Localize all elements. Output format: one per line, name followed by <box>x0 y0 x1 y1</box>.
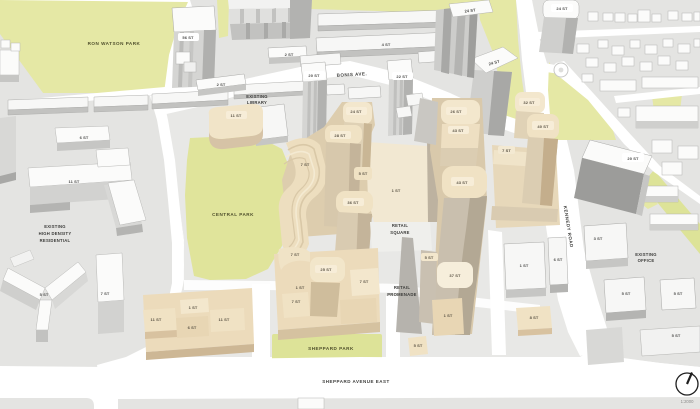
svg-text:7 ST: 7 ST <box>291 252 300 257</box>
svg-text:11 ST: 11 ST <box>231 113 242 118</box>
svg-text:11 ST: 11 ST <box>219 317 230 322</box>
svg-text:EXISTING: EXISTING <box>635 252 657 257</box>
svg-text:25 ST: 25 ST <box>320 267 332 272</box>
svg-text:1 ST: 1 ST <box>296 285 305 290</box>
svg-text:24 ST: 24 ST <box>556 6 568 11</box>
svg-text:40 ST: 40 ST <box>537 124 549 129</box>
svg-text:RON WATSON PARK: RON WATSON PARK <box>88 41 141 46</box>
svg-text:5 ST: 5 ST <box>40 292 49 297</box>
svg-text:CENTRAL PARK: CENTRAL PARK <box>212 212 254 217</box>
svg-text:SHEPPARD PARK: SHEPPARD PARK <box>308 346 354 351</box>
svg-text:11 ST: 11 ST <box>151 317 162 322</box>
svg-text:22 ST: 22 ST <box>396 74 408 79</box>
svg-text:28 ST: 28 ST <box>334 133 346 138</box>
svg-text:3 ST: 3 ST <box>594 236 603 241</box>
svg-text:43 ST: 43 ST <box>452 128 464 133</box>
svg-text:SQUARE: SQUARE <box>390 230 409 235</box>
svg-text:26 ST: 26 ST <box>450 109 462 114</box>
svg-text:RETAIL: RETAIL <box>392 223 409 228</box>
svg-text:1 ST: 1 ST <box>392 188 401 193</box>
svg-text:EXISTING: EXISTING <box>44 224 66 229</box>
svg-text:7 ST: 7 ST <box>101 291 110 296</box>
svg-text:43 ST: 43 ST <box>456 180 468 185</box>
svg-text:5 ST: 5 ST <box>414 343 423 348</box>
svg-text:1:2000: 1:2000 <box>681 399 694 404</box>
svg-text:RESIDENTIAL: RESIDENTIAL <box>40 238 71 243</box>
svg-text:OFFICE: OFFICE <box>638 258 655 263</box>
svg-text:6 ST: 6 ST <box>554 257 563 262</box>
svg-text:1 ST: 1 ST <box>189 305 198 310</box>
svg-text:7 ST: 7 ST <box>360 279 369 284</box>
svg-text:32 ST: 32 ST <box>523 100 535 105</box>
svg-text:11 ST: 11 ST <box>69 179 80 184</box>
svg-text:EXISTING: EXISTING <box>246 94 268 99</box>
svg-text:56 ST: 56 ST <box>182 35 194 40</box>
svg-text:24 ST: 24 ST <box>350 109 362 114</box>
svg-text:20 ST: 20 ST <box>308 73 320 78</box>
svg-text:5 ST: 5 ST <box>359 171 368 176</box>
svg-text:7 ST: 7 ST <box>502 148 511 153</box>
svg-text:5 ST: 5 ST <box>674 291 683 296</box>
svg-text:4 ST: 4 ST <box>382 42 391 47</box>
svg-text:1 ST: 1 ST <box>520 263 529 268</box>
svg-text:5 ST: 5 ST <box>672 333 681 338</box>
svg-text:1 ST: 1 ST <box>444 313 453 318</box>
svg-text:5 ST: 5 ST <box>622 291 631 296</box>
svg-text:2 ST: 2 ST <box>217 82 226 87</box>
svg-text:6 ST: 6 ST <box>80 135 89 140</box>
svg-text:PROMENADE: PROMENADE <box>387 292 416 297</box>
svg-text:SHEPPARD AVENUE EAST: SHEPPARD AVENUE EAST <box>322 379 389 384</box>
svg-text:36 ST: 36 ST <box>347 200 359 205</box>
svg-text:RETAIL: RETAIL <box>394 285 411 290</box>
svg-text:5 ST: 5 ST <box>425 255 434 260</box>
svg-text:8 ST: 8 ST <box>530 315 539 320</box>
svg-text:7 ST: 7 ST <box>292 299 301 304</box>
svg-text:6 ST: 6 ST <box>188 325 197 330</box>
svg-text:2 ST: 2 ST <box>285 52 294 57</box>
svg-text:7 ST: 7 ST <box>301 162 310 167</box>
svg-text:20 ST: 20 ST <box>627 156 639 161</box>
svg-text:37 ST: 37 ST <box>449 273 461 278</box>
svg-text:HIGH DENSITY: HIGH DENSITY <box>39 231 72 236</box>
